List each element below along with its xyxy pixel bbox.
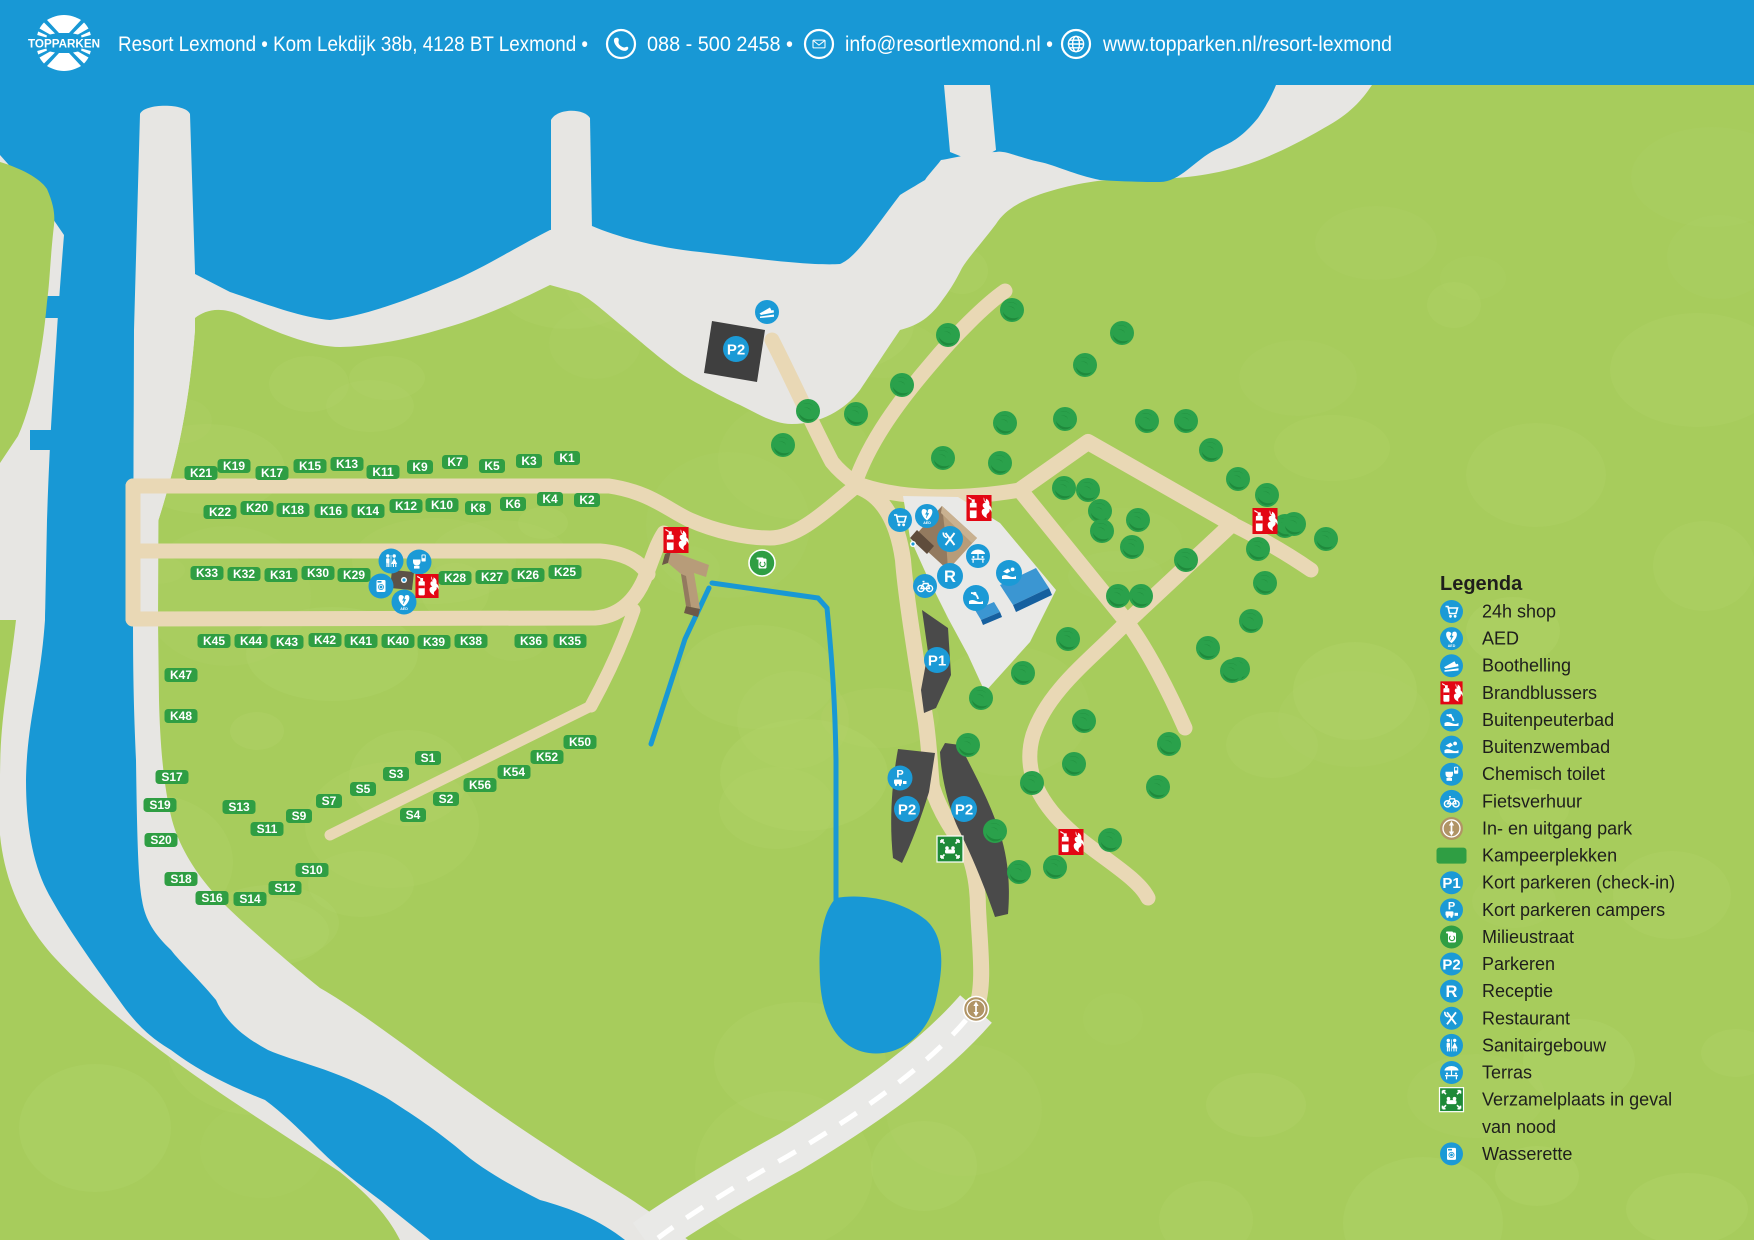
svg-text:P2: P2 [898, 802, 916, 819]
svg-text:Receptie: Receptie [1482, 981, 1553, 1001]
svg-text:S11: S11 [257, 822, 278, 836]
svg-text:K47: K47 [170, 668, 192, 682]
svg-text:In- en uitgang park: In- en uitgang park [1482, 818, 1633, 838]
svg-text:P1: P1 [1442, 875, 1460, 892]
svg-text:K25: K25 [554, 565, 576, 579]
svg-text:Brandblussers: Brandblussers [1482, 683, 1597, 703]
svg-text:AED: AED [1448, 644, 1456, 648]
svg-text:K35: K35 [559, 634, 581, 648]
svg-text:Resort Lexmond • Kom Lekdijk 3: Resort Lexmond • Kom Lekdijk 38b, 4128 B… [118, 32, 588, 56]
svg-text:K42: K42 [314, 633, 336, 647]
svg-text:P2: P2 [727, 342, 745, 359]
svg-text:S16: S16 [201, 891, 223, 905]
svg-text:S20: S20 [150, 833, 172, 847]
svg-text:K33: K33 [196, 566, 218, 580]
svg-text:S14: S14 [239, 892, 261, 906]
svg-text:Restaurant: Restaurant [1482, 1008, 1570, 1028]
svg-text:K45: K45 [203, 634, 225, 648]
svg-text:S18: S18 [170, 872, 192, 886]
svg-text:K6: K6 [505, 497, 521, 511]
svg-text:Boothelling: Boothelling [1482, 656, 1571, 676]
svg-text:S12: S12 [274, 881, 296, 895]
svg-text:S13: S13 [228, 800, 250, 814]
svg-text:K44: K44 [240, 634, 262, 648]
svg-text:K12: K12 [395, 499, 417, 513]
svg-text:S2: S2 [439, 792, 454, 806]
svg-text:Chemisch toilet: Chemisch toilet [1482, 764, 1605, 784]
svg-text:K3: K3 [521, 454, 537, 468]
svg-text:K26: K26 [517, 568, 539, 582]
svg-text:K8: K8 [470, 501, 486, 515]
svg-text:K32: K32 [233, 567, 255, 581]
svg-text:AED: AED [1482, 629, 1519, 649]
svg-text:Buitenzwembad: Buitenzwembad [1482, 737, 1610, 757]
svg-text:Kampeerplekken: Kampeerplekken [1482, 846, 1617, 866]
svg-text:K22: K22 [209, 505, 231, 519]
svg-text:P1: P1 [928, 653, 946, 670]
svg-text:S1: S1 [421, 751, 436, 765]
svg-text:info@resortlexmond.nl •: info@resortlexmond.nl • [845, 32, 1053, 56]
svg-text:P2: P2 [1442, 957, 1460, 974]
svg-text:Buitenpeuterbad: Buitenpeuterbad [1482, 710, 1614, 730]
svg-text:K38: K38 [460, 634, 482, 648]
svg-text:P: P [896, 769, 903, 781]
svg-text:24h shop: 24h shop [1482, 602, 1556, 622]
svg-text:K11: K11 [372, 465, 394, 479]
svg-text:K16: K16 [320, 504, 342, 518]
svg-text:P2: P2 [955, 802, 973, 819]
svg-text:K5: K5 [484, 459, 500, 473]
svg-text:R: R [1446, 983, 1458, 1001]
svg-text:Legenda: Legenda [1440, 573, 1523, 595]
svg-text:K2: K2 [579, 493, 595, 507]
svg-text:S9: S9 [292, 809, 307, 823]
svg-text:P: P [1448, 900, 1455, 912]
svg-text:K28: K28 [444, 571, 466, 585]
svg-text:K30: K30 [307, 566, 329, 580]
svg-text:K43: K43 [276, 635, 298, 649]
svg-text:K54: K54 [503, 765, 525, 779]
svg-text:K17: K17 [261, 466, 283, 480]
svg-text:AED: AED [923, 521, 931, 525]
svg-text:K50: K50 [569, 735, 591, 749]
svg-text:TOPPARKEN: TOPPARKEN [28, 39, 100, 51]
svg-text:S19: S19 [149, 798, 171, 812]
svg-text:K19: K19 [223, 459, 245, 473]
svg-text:K9: K9 [412, 460, 428, 474]
svg-text:R: R [944, 568, 956, 586]
svg-text:Wasserette: Wasserette [1482, 1144, 1572, 1164]
svg-text:K56: K56 [469, 778, 491, 792]
svg-text:Kort parkeren (check-in): Kort parkeren (check-in) [1482, 873, 1675, 893]
svg-text:S5: S5 [356, 782, 371, 796]
svg-text:K10: K10 [431, 498, 453, 512]
svg-text:Kort parkeren campers: Kort parkeren campers [1482, 900, 1665, 920]
svg-text:K27: K27 [481, 570, 503, 584]
svg-text:van nood: van nood [1482, 1117, 1556, 1137]
svg-text:K52: K52 [536, 750, 558, 764]
svg-text:S7: S7 [322, 794, 337, 808]
svg-text:088 - 500 2458 •: 088 - 500 2458 • [647, 32, 793, 56]
svg-text:K40: K40 [387, 634, 409, 648]
svg-text:Terras: Terras [1482, 1063, 1532, 1083]
svg-text:K13: K13 [336, 457, 358, 471]
svg-text:Sanitairgebouw: Sanitairgebouw [1482, 1035, 1607, 1055]
svg-text:Fietsverhuur: Fietsverhuur [1482, 791, 1582, 811]
svg-text:Parkeren: Parkeren [1482, 954, 1555, 974]
svg-text:K31: K31 [270, 568, 292, 582]
svg-text:K4: K4 [542, 492, 558, 506]
svg-text:Verzamelplaats in geval: Verzamelplaats in geval [1482, 1090, 1672, 1110]
svg-text:www.topparken.nl/resort-lexmon: www.topparken.nl/resort-lexmond [1102, 32, 1392, 56]
svg-text:Milieustraat: Milieustraat [1482, 927, 1574, 947]
svg-text:S10: S10 [301, 863, 323, 877]
svg-text:AED: AED [400, 607, 408, 611]
svg-text:K18: K18 [282, 503, 304, 517]
svg-text:K7: K7 [447, 455, 463, 469]
svg-text:K39: K39 [423, 635, 445, 649]
svg-text:K48: K48 [170, 709, 192, 723]
svg-text:K21: K21 [190, 466, 212, 480]
svg-text:K29: K29 [343, 568, 365, 582]
svg-text:K14: K14 [357, 504, 379, 518]
svg-text:S4: S4 [406, 808, 421, 822]
svg-text:S3: S3 [389, 767, 404, 781]
svg-text:K36: K36 [520, 634, 542, 648]
svg-text:S17: S17 [161, 770, 183, 784]
svg-text:K1: K1 [559, 451, 575, 465]
svg-text:K20: K20 [246, 501, 268, 515]
svg-text:K41: K41 [350, 634, 372, 648]
svg-text:K15: K15 [299, 459, 321, 473]
